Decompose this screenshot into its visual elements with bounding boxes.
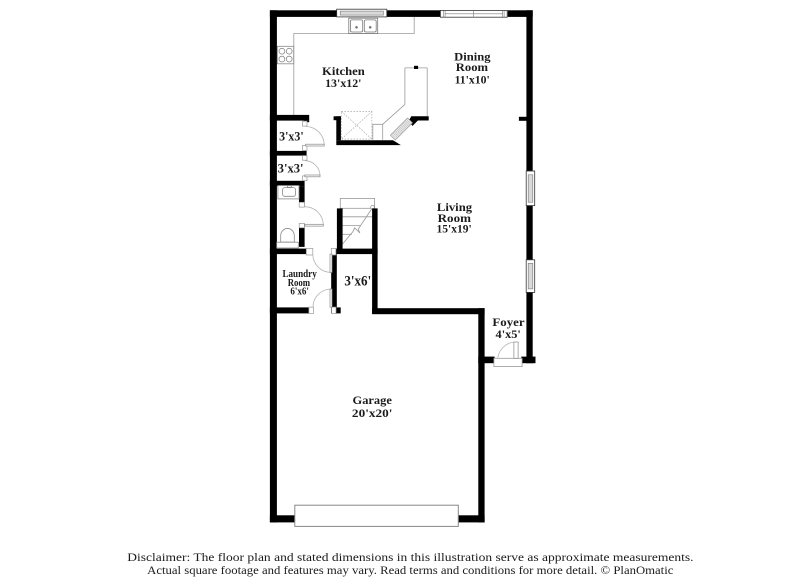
svg-text:3'x3': 3'x3' xyxy=(279,130,304,144)
svg-text:13'x12': 13'x12' xyxy=(325,76,361,90)
svg-text:20'x20': 20'x20' xyxy=(352,406,393,420)
svg-text:15'x19': 15'x19' xyxy=(437,222,472,236)
svg-text:3'x3': 3'x3' xyxy=(278,161,304,175)
svg-text:11'x10': 11'x10' xyxy=(455,72,490,86)
svg-text:6'x6': 6'x6' xyxy=(290,286,309,297)
svg-text:Actual square footage and feat: Actual square footage and features may v… xyxy=(147,563,673,577)
svg-text:4'x5': 4'x5' xyxy=(496,327,521,341)
svg-text:Garage: Garage xyxy=(353,393,393,407)
svg-text:3'x6': 3'x6' xyxy=(344,274,371,290)
